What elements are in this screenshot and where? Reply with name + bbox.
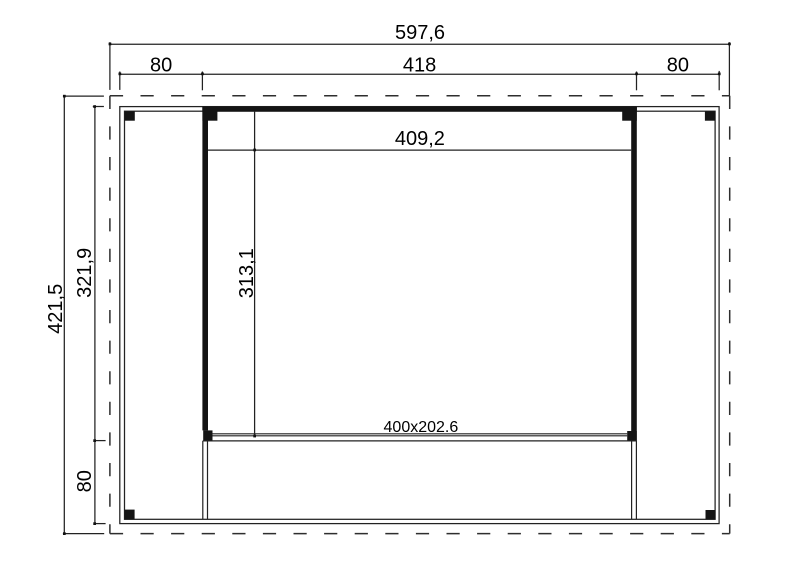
svg-text:409,2: 409,2	[395, 128, 445, 150]
svg-text:400x202.6: 400x202.6	[384, 419, 459, 436]
svg-text:421,5: 421,5	[45, 284, 67, 334]
svg-text:321,9: 321,9	[74, 248, 96, 298]
svg-text:597,6: 597,6	[395, 22, 445, 44]
svg-text:80: 80	[74, 470, 96, 492]
svg-text:80: 80	[667, 55, 689, 77]
svg-text:80: 80	[150, 55, 172, 77]
svg-text:418: 418	[403, 55, 436, 77]
svg-text:313,1: 313,1	[236, 248, 258, 298]
